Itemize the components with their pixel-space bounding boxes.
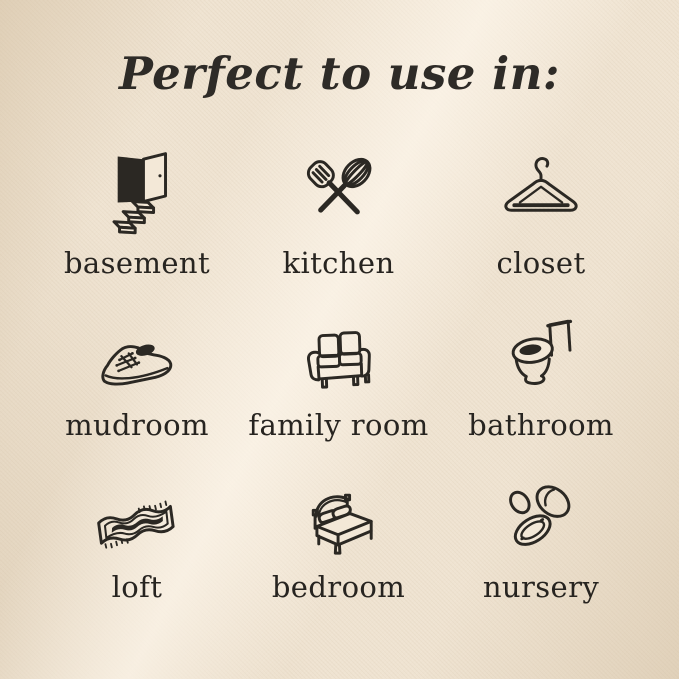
- room-label: basement: [64, 246, 210, 280]
- room-label: bathroom: [468, 408, 614, 442]
- room-closet: closet: [445, 152, 637, 280]
- room-basement: basement: [42, 152, 232, 280]
- rug-icon: [91, 474, 183, 566]
- room-label: mudroom: [65, 408, 209, 442]
- kitchen-utensils-icon: [293, 150, 385, 242]
- room-bedroom: bedroom: [232, 476, 445, 604]
- room-label: closet: [496, 246, 585, 280]
- sneaker-icon: [91, 312, 183, 404]
- room-label: bedroom: [272, 570, 405, 604]
- room-kitchen: kitchen: [232, 152, 445, 280]
- room-label: nursery: [483, 570, 599, 604]
- room-bathroom: bathroom: [445, 314, 637, 442]
- clothes-hanger-icon: [495, 150, 587, 242]
- infographic-canvas: Perfect to use in:: [0, 0, 679, 679]
- room-label: kitchen: [282, 246, 394, 280]
- page-title: Perfect to use in:: [0, 0, 679, 102]
- bed-icon: [293, 474, 385, 566]
- room-family-room: family room: [232, 314, 445, 442]
- room-nursery: nursery: [445, 476, 637, 604]
- room-loft: loft: [42, 476, 232, 604]
- sofa-icon: [293, 312, 385, 404]
- pacifier-icon: [495, 474, 587, 566]
- room-label: family room: [248, 408, 428, 442]
- room-mudroom: mudroom: [42, 314, 232, 442]
- basement-stairs-icon: [91, 150, 183, 242]
- rooms-grid: basement: [42, 152, 637, 604]
- room-label: loft: [112, 570, 163, 604]
- toilet-icon: [495, 312, 587, 404]
